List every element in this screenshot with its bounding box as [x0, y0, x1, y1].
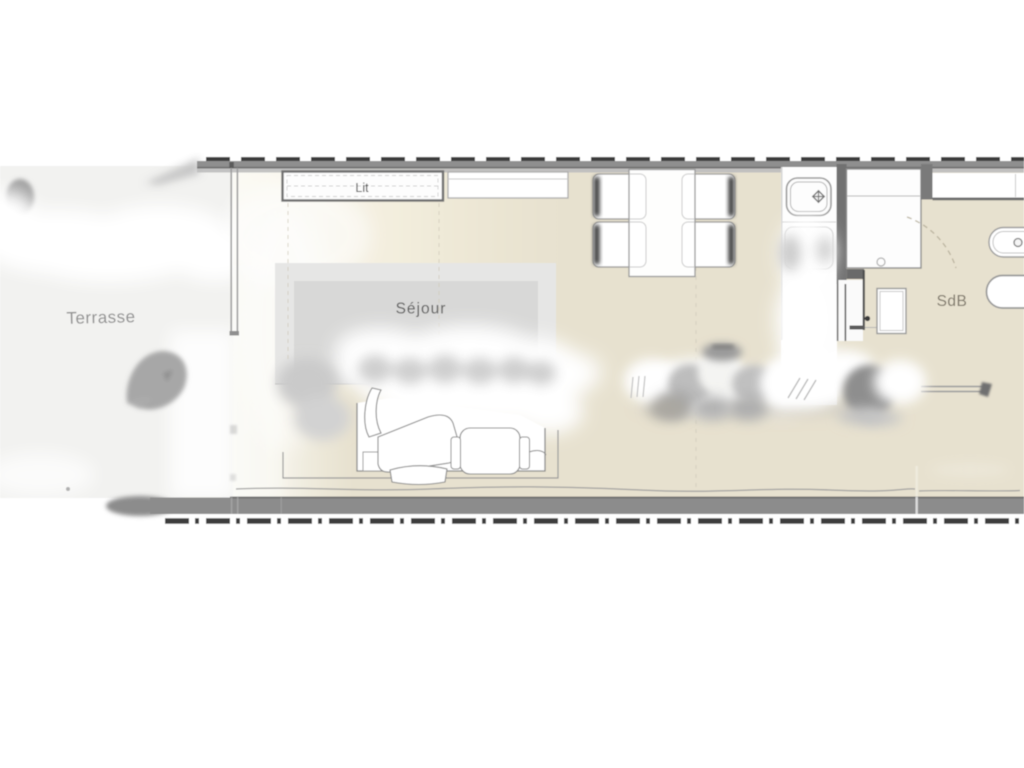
svg-text:SdB: SdB [937, 293, 968, 310]
svg-text:Terrasse: Terrasse [66, 307, 136, 328]
svg-text:Lit: Lit [355, 181, 369, 195]
svg-text:Séjour: Séjour [396, 301, 447, 318]
